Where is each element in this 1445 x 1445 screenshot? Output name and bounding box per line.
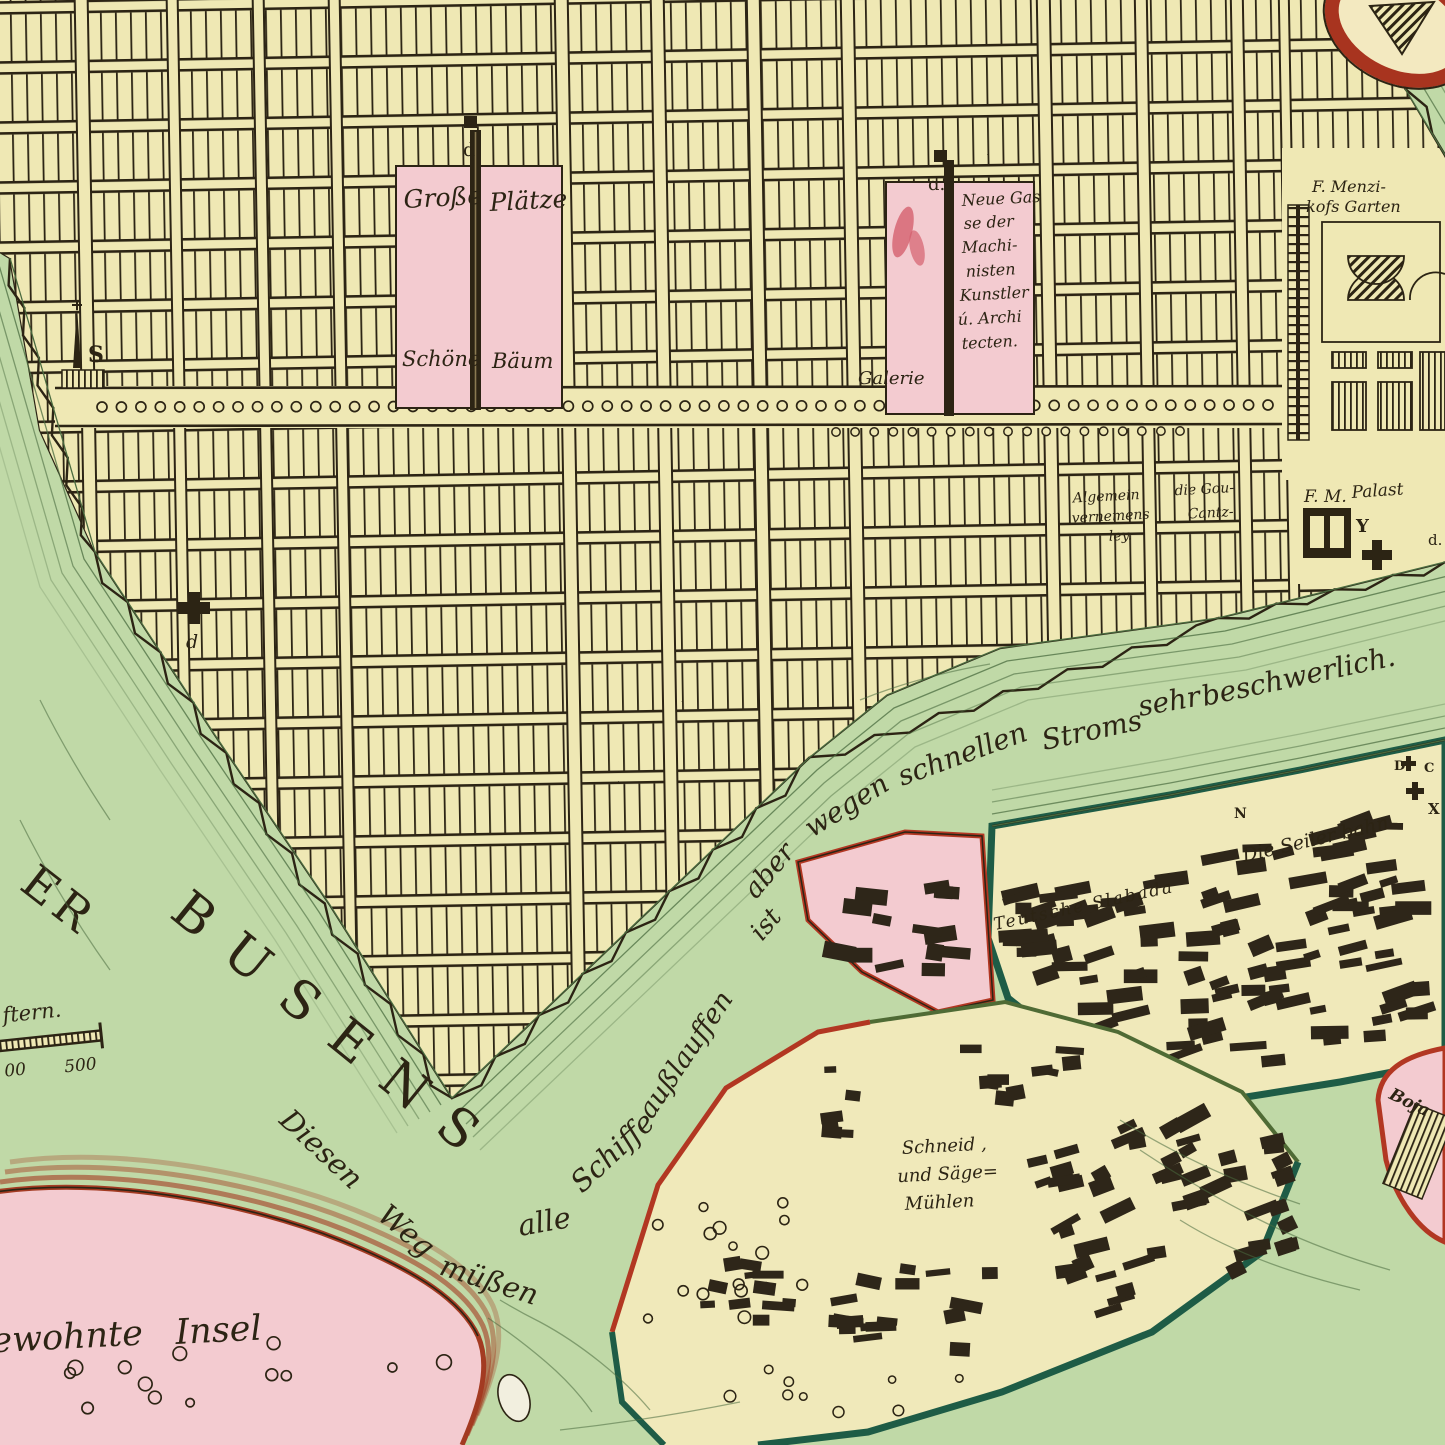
- gouv-line: die Gou-: [1174, 480, 1235, 499]
- label-schoene: Schöne: [402, 347, 480, 371]
- label-d-marker2: d.: [928, 174, 945, 195]
- letter-d-palast: d.: [1428, 531, 1442, 549]
- garden-parterres: [1322, 222, 1445, 430]
- menzikoff-garden: F. Menzi- kofs Garten: [1282, 148, 1445, 480]
- palast-label: Palast: [1350, 479, 1404, 503]
- neue-gasse-line: tecten.: [961, 331, 1018, 353]
- palast-fm: F. M.: [1303, 487, 1347, 507]
- neue-gasse-line: se der: [963, 211, 1015, 233]
- menzikoff-line2: kofs Garten: [1306, 197, 1401, 216]
- palast-court-a: [1310, 516, 1324, 548]
- label-plaetze: Plätze: [488, 184, 568, 217]
- neue-gasse-line: ú. Archi: [957, 307, 1022, 329]
- letter-d-chapel: d: [186, 631, 198, 653]
- palast-court-b: [1330, 516, 1344, 548]
- street-marker-square: [464, 116, 477, 128]
- scale-tick-right: 500: [63, 1054, 98, 1077]
- engraved-city-map: Große Plätze Schöne Bäum d d. Neue Gas s…: [0, 0, 1445, 1445]
- label-grosse: Große: [403, 181, 483, 214]
- letter-s: S: [88, 342, 104, 368]
- street-marker-square-2: [934, 150, 947, 162]
- letter-y: Y: [1355, 516, 1370, 537]
- letter-c: C: [1424, 761, 1434, 776]
- menzikoff-line1: F. Menzi-: [1311, 177, 1386, 196]
- label-insel-1: ewohnte: [0, 1314, 144, 1362]
- label-d-marker1: d: [463, 139, 475, 161]
- schneid-line: Schneid ,: [901, 1134, 987, 1159]
- letter-n: N: [1234, 806, 1247, 822]
- label-insel-2: Insel: [173, 1309, 262, 1354]
- neue-gasse-line: nisten: [965, 259, 1016, 281]
- neue-gasse-line: Machi-: [960, 235, 1018, 257]
- letter-x: X: [1428, 800, 1440, 818]
- church-building: [62, 370, 104, 388]
- schneid-line: Mühlen: [903, 1190, 975, 1215]
- label-baeum: Bäum: [491, 349, 553, 373]
- map-canvas: Große Plätze Schöne Bäum d d. Neue Gas s…: [0, 0, 1445, 1445]
- scale-tick-left: 00: [3, 1059, 27, 1081]
- garden-ladder-strip: [1288, 205, 1309, 440]
- neue-gasse-plaza: d. Neue Gas se der Machi- nisten Kunstle…: [858, 150, 1041, 416]
- neue-gasse-line: Kunstler: [958, 282, 1030, 305]
- gouv-line: ley.: [1108, 527, 1132, 544]
- label-galerie: Galerie: [858, 368, 925, 389]
- plaza-street-2: [944, 160, 954, 416]
- gouv-line: Cantz-: [1187, 504, 1234, 522]
